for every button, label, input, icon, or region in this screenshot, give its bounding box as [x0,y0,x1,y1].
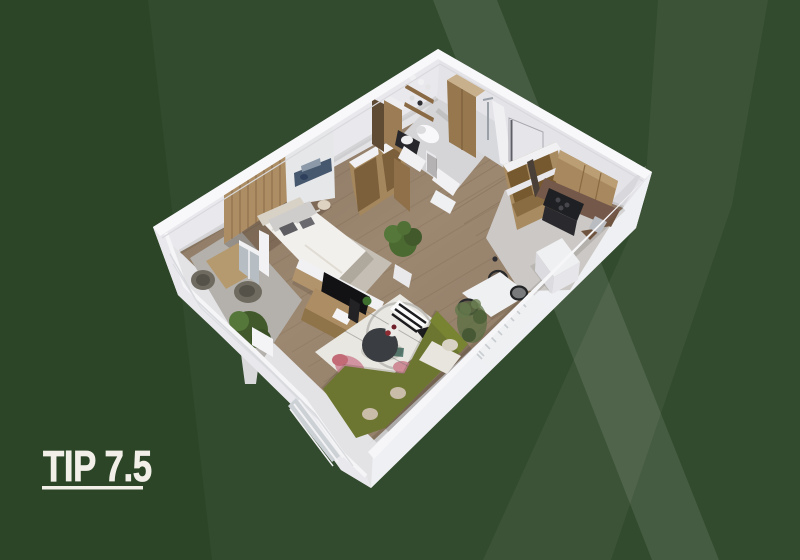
svg-text:TIP 7.5: TIP 7.5 [43,442,152,491]
